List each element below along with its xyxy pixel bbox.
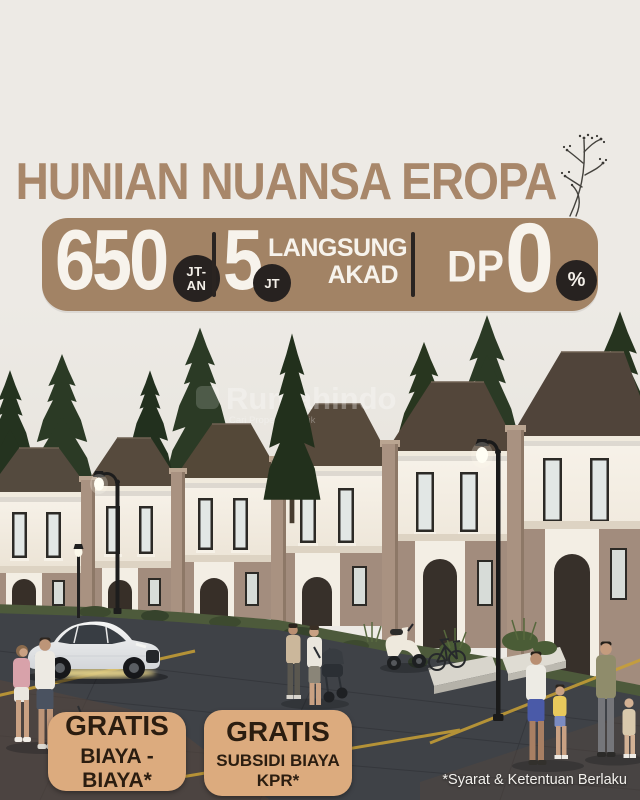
branch-decoration-icon [556, 130, 620, 218]
offer-banner: 650 JT- AN 5 JT LANGSUNG AKAD DP 0 % [42, 218, 598, 311]
terms-footnote: *Syarat & Ketentuan Berlaku [442, 772, 627, 788]
watermark-brand: Rumahindo [226, 381, 397, 416]
dp-label: DP [447, 245, 504, 289]
flyer-poster: HUNIAN NUANSA EROPA 650 JT- AN 5 JT [0, 0, 640, 800]
banner-divider [411, 232, 415, 297]
dp-unit-circle: % [556, 260, 597, 301]
price-unit-bottom: AN [187, 279, 207, 293]
badge-subtitle: BIAYA - BIAYA* [48, 745, 186, 793]
promo-badge-kpr: GRATIS SUBSIDI BIAYA KPR* [204, 710, 352, 796]
badge-subtitle: SUBSIDI BIAYA KPR* [204, 751, 352, 791]
banner-divider [212, 232, 216, 297]
page-title: HUNIAN NUANSA EROPA [8, 151, 564, 211]
dp-value: 0 [505, 208, 552, 307]
price-value: 650 [55, 218, 166, 303]
promo-badge-biaya: GRATIS BIAYA - BIAYA* [48, 712, 186, 791]
price-unit-top: JT- [186, 265, 206, 279]
badge-title: GRATIS [204, 716, 352, 748]
badge-title: GRATIS [48, 710, 186, 742]
akad-label: LANGSUNG AKAD [268, 235, 398, 289]
